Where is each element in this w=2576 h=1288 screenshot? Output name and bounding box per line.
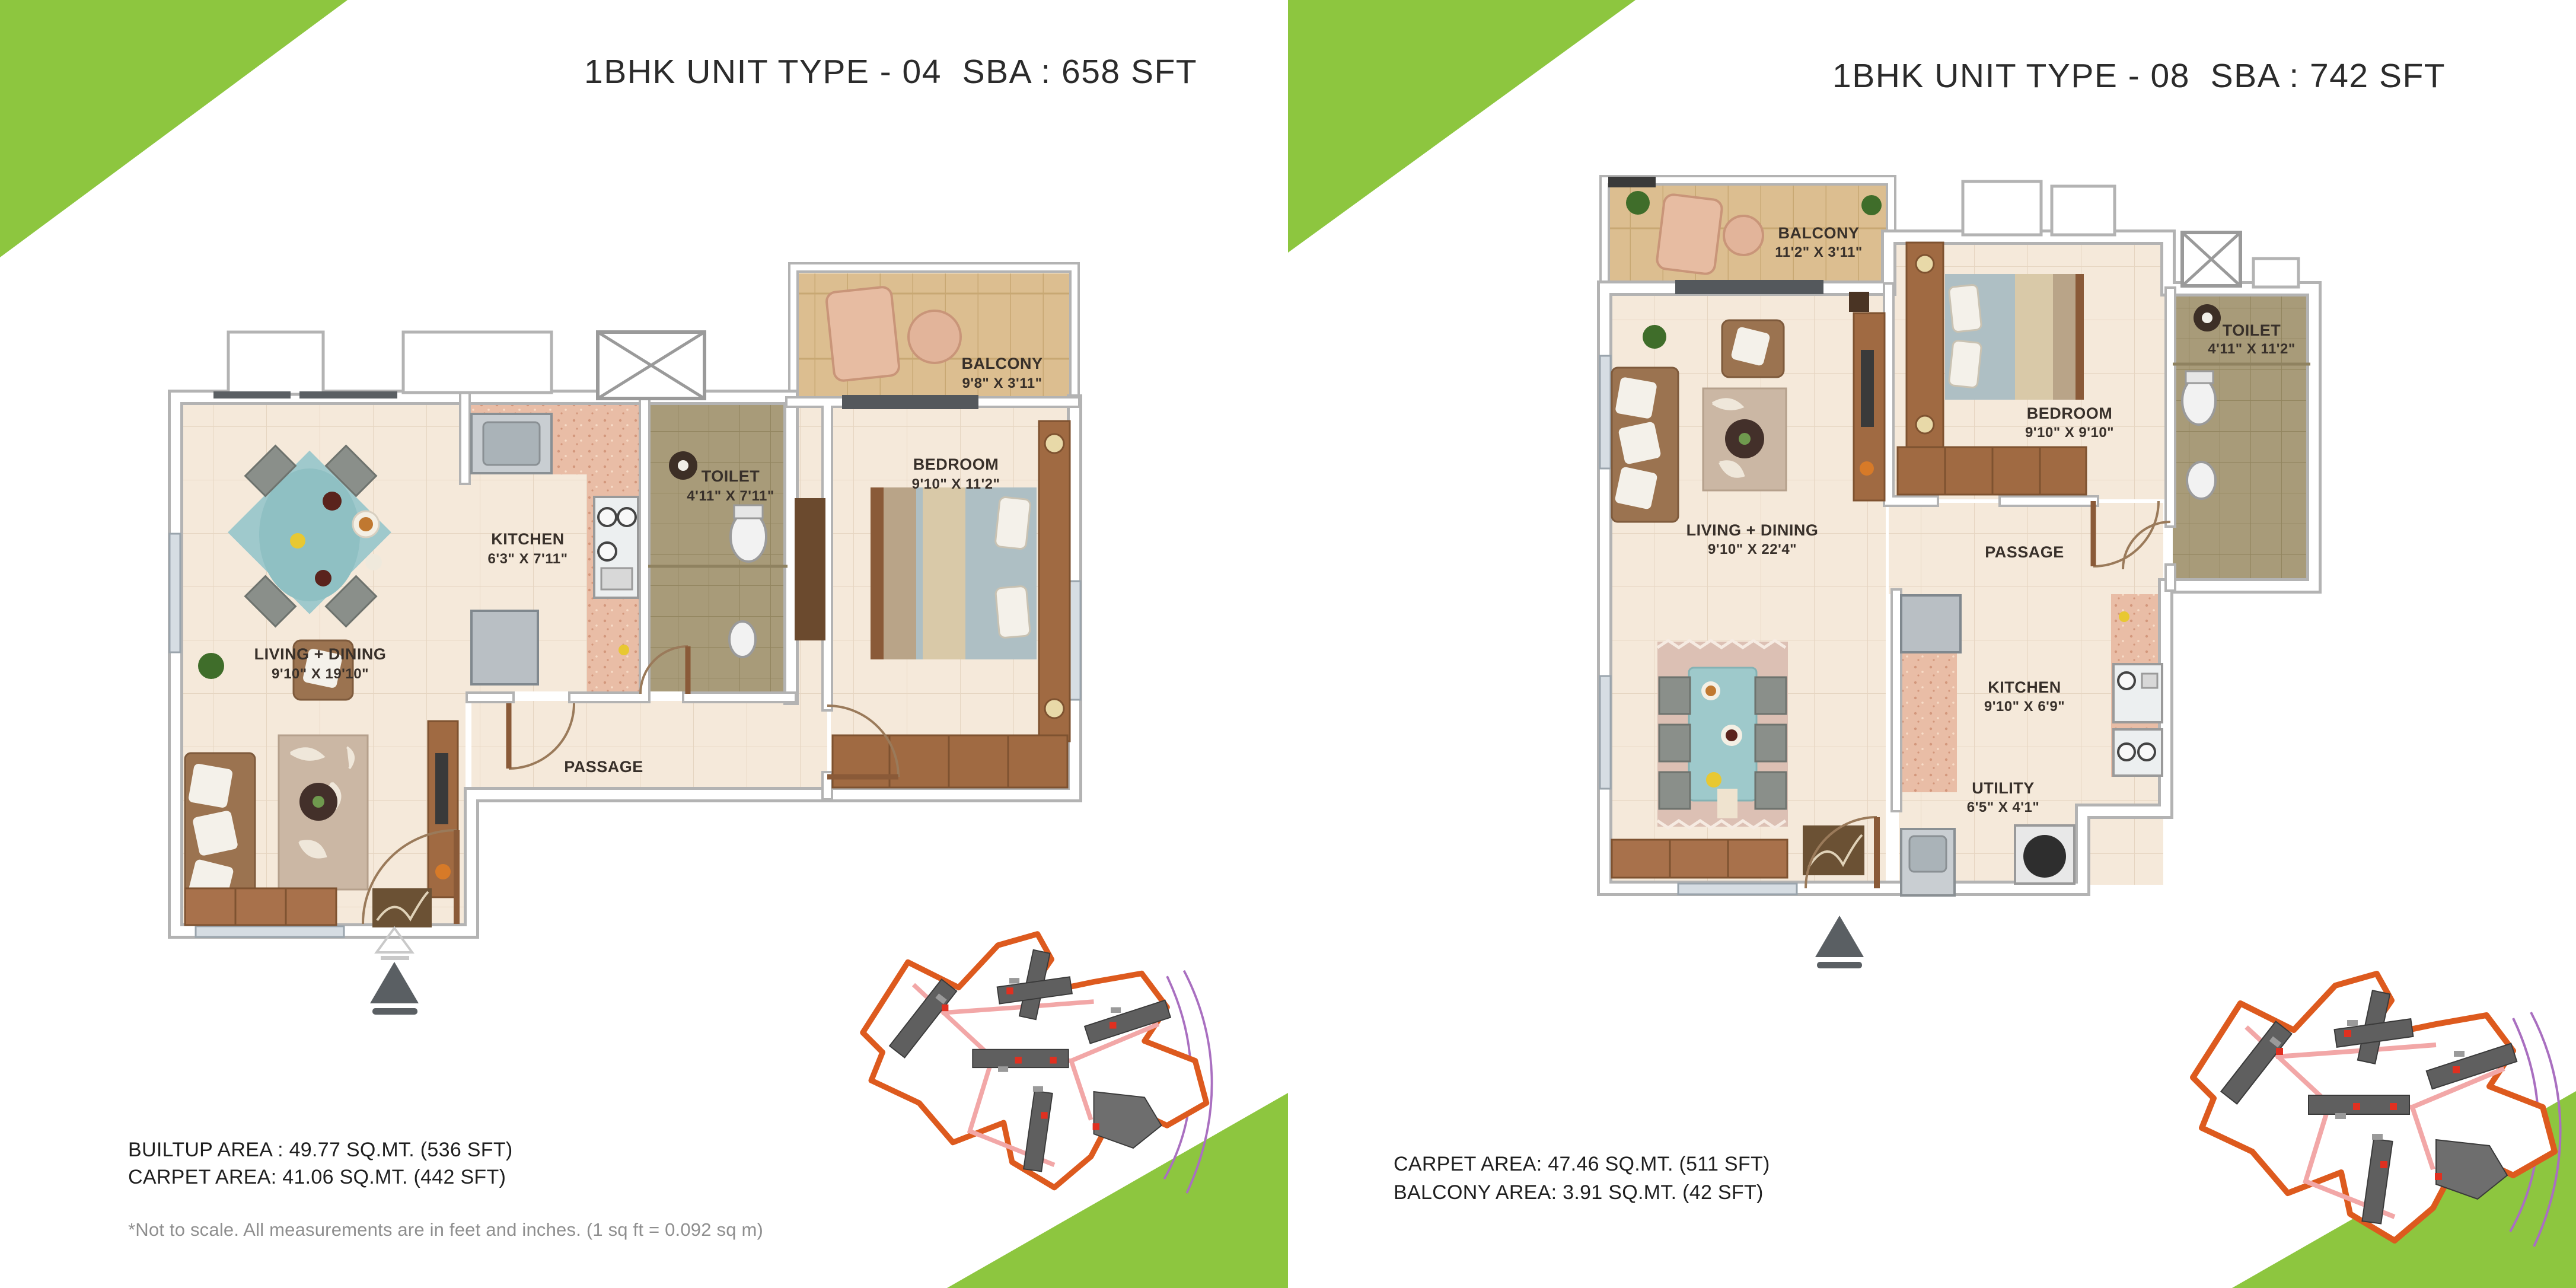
lounge-chair (1656, 193, 1723, 275)
label-kitchen: KITCHEN (491, 530, 565, 548)
cushion (1615, 377, 1657, 419)
label-balcony-dims: 11'2" X 3'11" (1775, 244, 1862, 260)
label-living-dims: 9'10" X 19'10" (272, 666, 369, 682)
label-toilet: TOILET (702, 467, 760, 485)
pillow (1949, 285, 1982, 333)
label-toilet: TOILET (2223, 321, 2281, 339)
label-balcony: BALCONY (962, 355, 1043, 372)
cabinet (1901, 595, 1960, 652)
label-kitchen-dims: 9'10" X 6'9" (1984, 699, 2065, 715)
window-ledge (1963, 181, 2041, 235)
cushion (188, 763, 233, 808)
entry-arrow (370, 928, 419, 1015)
triangle-top-left-page1 (0, 0, 347, 257)
unit-04-carpet-area: CARPET AREA: 41.06 SQ.MT. (442 SFT) (128, 1166, 506, 1189)
plant (1626, 191, 1650, 215)
label-utility: UTILITY (1972, 779, 2035, 797)
unit-08-balcony-area: BALCONY AREA: 3.91 SQ.MT. (42 SFT) (1394, 1181, 1764, 1204)
scale-disclaimer: *Not to scale. All measurements are in f… (128, 1219, 763, 1241)
lounge-chair (825, 286, 900, 382)
refrigerator (471, 611, 538, 684)
pillow (995, 586, 1030, 638)
basin (2187, 462, 2215, 499)
label-bedroom: BEDROOM (913, 455, 999, 473)
plant (1643, 325, 1666, 349)
dining-chair (1659, 725, 1690, 761)
label-toilet-dims: 4'11" X 7'11" (687, 488, 774, 504)
entry-arrow (1815, 916, 1864, 968)
cushion (1614, 466, 1658, 510)
wc (2182, 377, 2215, 425)
plant (1861, 195, 1882, 215)
sideboard (1612, 840, 1787, 878)
doormat (372, 888, 432, 927)
dining-chair (1755, 677, 1786, 714)
label-toilet-dims: 4'11" X 11'2" (2208, 341, 2295, 357)
cushion (1618, 421, 1662, 465)
label-passage: PASSAGE (564, 758, 643, 776)
label-balcony-dims: 9'8" X 3'11" (962, 375, 1042, 391)
label-bedroom-dims: 9'10" X 11'2" (912, 476, 1000, 492)
label-bedroom-dims: 9'10" X 9'10" (2025, 425, 2114, 441)
flower-decor (619, 645, 629, 655)
window-ledge (403, 332, 551, 393)
window-ledge (228, 332, 323, 394)
sliding-door-balcony (1675, 280, 1823, 294)
platter (1717, 789, 1737, 818)
dining-chair (1755, 725, 1786, 761)
wardrobe-panel (1039, 421, 1070, 741)
dining-chair (1659, 772, 1690, 809)
sliding-door-balcony (842, 395, 978, 409)
tv (435, 753, 448, 824)
label-bedroom: BEDROOM (2027, 404, 2113, 422)
label-living-dims: 9'10" X 22'4" (1708, 541, 1797, 557)
wc (731, 512, 766, 562)
flower-decor (2119, 611, 2129, 622)
unit-08-title: 1BHK UNIT TYPE - 08 SBA : 742 SFT (1832, 56, 2446, 95)
plant (198, 653, 224, 679)
label-kitchen: KITCHEN (1988, 678, 2061, 696)
unit-04-builtup-area: BUILTUP AREA : 49.77 SQ.MT. (536 SFT) (128, 1139, 513, 1162)
round-table (1724, 216, 1763, 255)
unit-08-carpet-area: CARPET AREA: 47.46 SQ.MT. (511 SFT) (1394, 1153, 1770, 1176)
window-ledge (2052, 186, 2115, 235)
cushion (192, 810, 238, 856)
bed-foot-rail (871, 487, 885, 659)
wall-lamp (1916, 416, 1934, 433)
sideboard (185, 888, 336, 925)
label-passage: PASSAGE (1985, 543, 2064, 561)
cupboard (795, 498, 825, 640)
wall-lamp (1045, 699, 1064, 718)
wall-lamp (1045, 434, 1064, 453)
floor-plan-unit-08: BALCONY 11'2" X 3'11" BEDROOM 9'10" X 9'… (1560, 154, 2378, 996)
pillow (1949, 340, 1982, 388)
wall-lamp (1916, 255, 1934, 273)
label-kitchen-dims: 6'3" X 7'11" (488, 551, 568, 567)
tv (1861, 350, 1874, 427)
floor-plan-unit-04: BALCONY 9'8" X 3'11" BEDROOM 9'10" X 11'… (148, 249, 1109, 1032)
dining-chair (1659, 677, 1690, 714)
label-living: LIVING + DINING (1686, 521, 1819, 539)
dining-chair (1755, 772, 1786, 809)
pillow (995, 497, 1031, 550)
wall-art (1849, 292, 1869, 312)
label-utility-dims: 6'5" X 4'1" (1967, 799, 2039, 815)
dining-table (259, 468, 360, 601)
label-balcony: BALCONY (1778, 224, 1860, 242)
unit-04-title: 1BHK UNIT TYPE - 04 SBA : 658 SFT (584, 52, 1197, 91)
bedroom-furniture (1898, 243, 2086, 495)
round-table (908, 311, 961, 363)
basin (729, 621, 755, 657)
dresser (833, 735, 1067, 788)
label-living: LIVING + DINING (254, 645, 387, 663)
